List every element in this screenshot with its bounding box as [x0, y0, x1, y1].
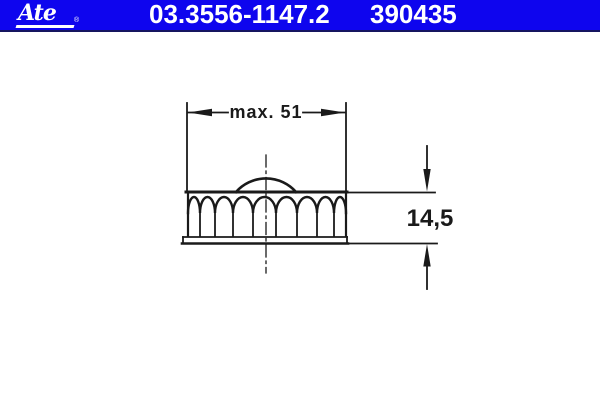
registered-mark: ®	[74, 17, 79, 24]
width-dimension-label: max. 51	[229, 102, 302, 122]
cap-outline	[182, 155, 348, 273]
arrow-left-icon	[188, 109, 212, 117]
knurl-arcs	[188, 197, 346, 213]
height-dimension: 14,5	[347, 146, 453, 289]
flange	[182, 237, 348, 244]
ate-logo-text: Ate	[18, 0, 56, 27]
height-dimension-label: 14,5	[407, 205, 454, 232]
part-number: 03.3556-1147.2	[149, 0, 330, 30]
header-bar: Ate ® 03.3556-1147.2 390435	[0, 0, 600, 32]
ate-logo-underline	[16, 25, 75, 28]
arrow-up-icon	[423, 244, 430, 267]
technical-drawing: max. 51	[0, 0, 600, 400]
knurl-ribs	[200, 213, 334, 236]
arrow-right-icon	[321, 109, 345, 117]
arrow-down-icon	[423, 169, 430, 192]
reference-number: 390435	[370, 0, 457, 30]
ate-logo: Ate ®	[16, 0, 80, 30]
